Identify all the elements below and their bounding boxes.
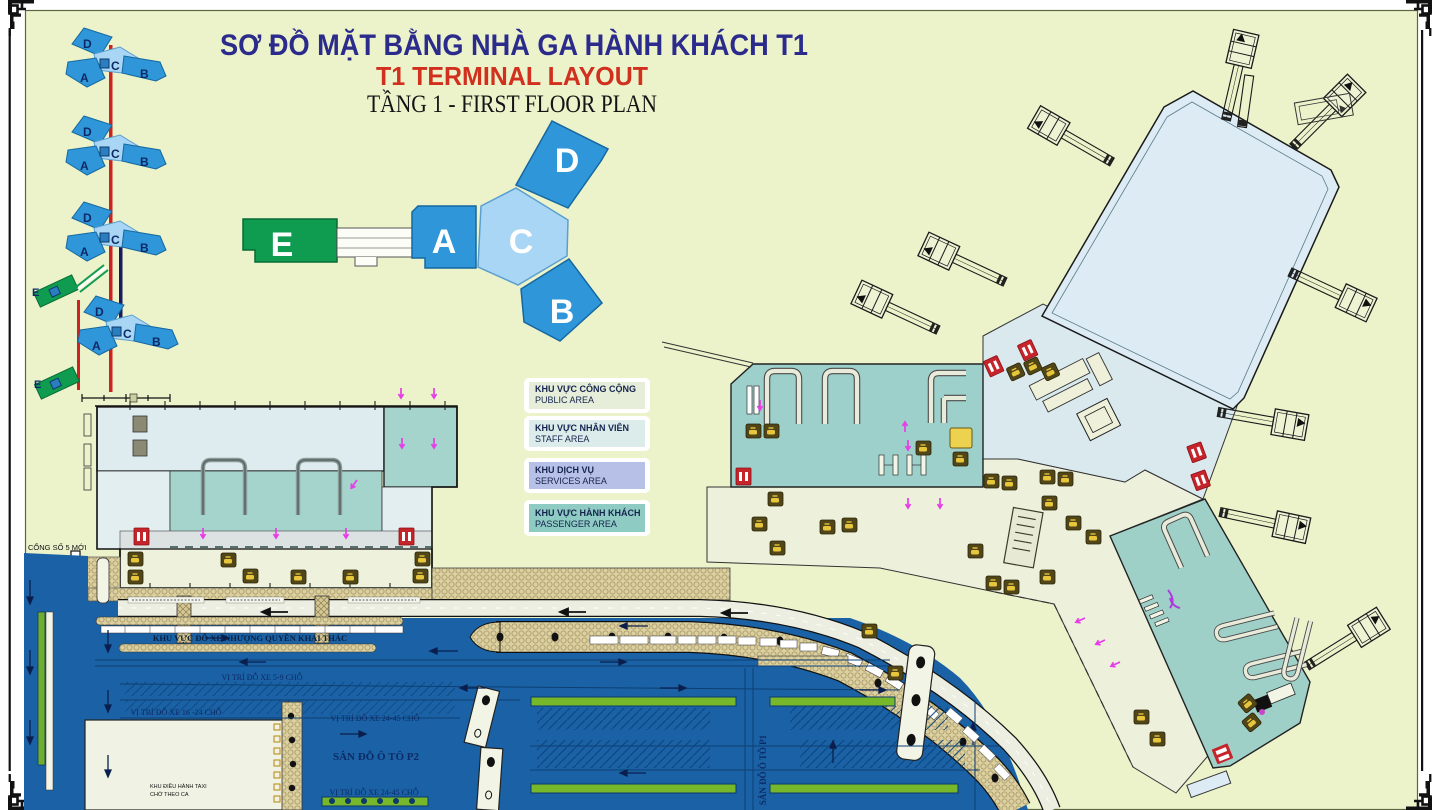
- svg-text:TẦNG 1 - FIRST FLOOR PLAN: TẦNG 1 - FIRST FLOOR PLAN: [367, 89, 657, 118]
- svg-text:KHU ĐIỀU HÀNH TAXI: KHU ĐIỀU HÀNH TAXI: [150, 783, 207, 790]
- svg-text:E: E: [271, 226, 294, 264]
- svg-text:KHU VỰC NHÂN VIÊN: KHU VỰC NHÂN VIÊN: [535, 422, 629, 433]
- svg-text:VỊ TRÍ ĐỖ XE 16 -24 CHỖ: VỊ TRÍ ĐỖ XE 16 -24 CHỖ: [131, 706, 222, 717]
- svg-text:KHU VỰC CÔNG CỘNG: KHU VỰC CÔNG CỘNG: [535, 383, 636, 394]
- svg-text:CHỜ THEO CA: CHỜ THEO CA: [150, 791, 189, 798]
- svg-text:E: E: [34, 379, 41, 391]
- svg-text:SÂN ĐỖ Ô TÔ P1: SÂN ĐỖ Ô TÔ P1: [758, 734, 768, 805]
- svg-text:B: B: [550, 293, 575, 331]
- svg-text:PASSENGER AREA: PASSENGER AREA: [535, 519, 617, 529]
- svg-text:KHU VỰC HÀNH KHÁCH: KHU VỰC HÀNH KHÁCH: [535, 508, 640, 518]
- svg-text:E: E: [32, 287, 39, 299]
- svg-text:KHU VỰC ĐỖ XE NHƯỢNG QUYỀN KHA: KHU VỰC ĐỖ XE NHƯỢNG QUYỀN KHAI THÁC: [153, 633, 347, 643]
- svg-text:KHU DỊCH VỤ: KHU DỊCH VỤ: [535, 465, 594, 475]
- svg-text:PUBLIC AREA: PUBLIC AREA: [535, 395, 594, 405]
- svg-text:A: A: [432, 223, 457, 261]
- svg-text:SÂN ĐỖ Ô TÔ P2: SÂN ĐỖ Ô TÔ P2: [333, 750, 419, 763]
- svg-text:VỊ TRÍ ĐỖ XE 5-9 CHỖ: VỊ TRÍ ĐỖ XE 5-9 CHỖ: [222, 671, 303, 682]
- svg-text:VỊ TRÍ ĐỖ XE 24-45 CHỖ: VỊ TRÍ ĐỖ XE 24-45 CHỖ: [331, 712, 420, 723]
- svg-text:SERVICES AREA: SERVICES AREA: [535, 476, 607, 486]
- svg-text:SƠ ĐỒ MẶT BẰNG NHÀ GA HÀNH KHÁ: SƠ ĐỒ MẶT BẰNG NHÀ GA HÀNH KHÁCH T1: [220, 28, 808, 62]
- svg-text:D: D: [555, 142, 580, 180]
- svg-text:C: C: [509, 223, 534, 261]
- svg-text:VỊ TRÍ ĐỖ XE 24-45 CHỖ: VỊ TRÍ ĐỖ XE 24-45 CHỖ: [330, 786, 419, 797]
- svg-text:T1 TERMINAL LAYOUT: T1 TERMINAL LAYOUT: [376, 61, 648, 91]
- svg-text:STAFF AREA: STAFF AREA: [535, 434, 589, 444]
